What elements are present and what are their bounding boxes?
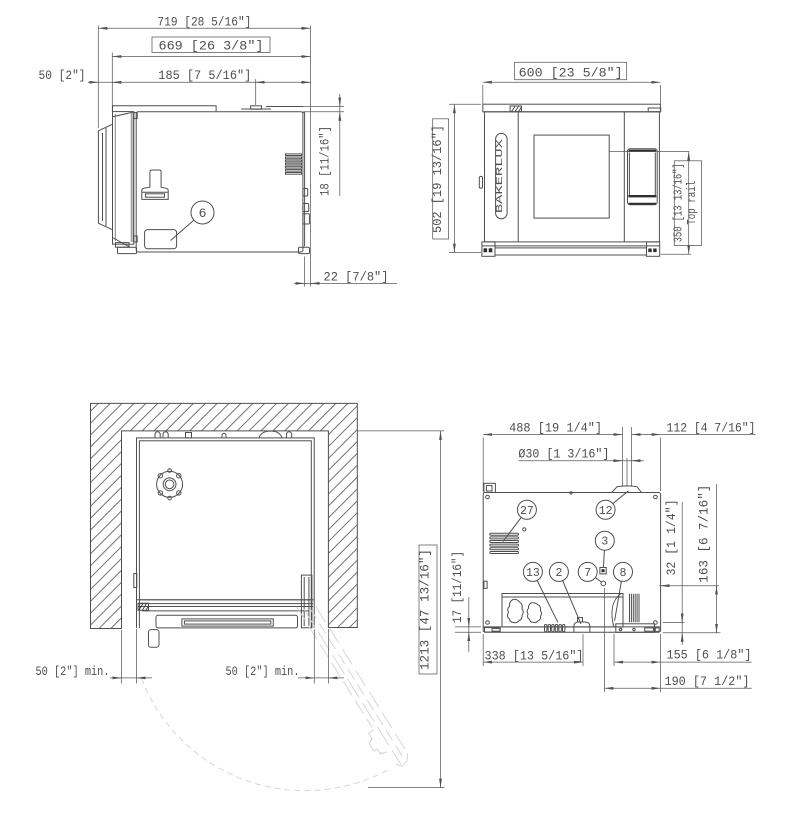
svg-text:2: 2 [555, 567, 562, 580]
svg-text:190 [7 1/2"]: 190 [7 1/2"] [665, 675, 750, 689]
svg-text:7: 7 [584, 567, 591, 580]
svg-text:6: 6 [199, 206, 207, 221]
svg-text:BAKERLUX: BAKERLUX [495, 138, 505, 213]
svg-text:112 [4 7/16"]: 112 [4 7/16"] [667, 422, 756, 436]
svg-text:163 [6 7/16"]: 163 [6 7/16"] [697, 485, 711, 583]
svg-text:17 [11/16"]: 17 [11/16"] [451, 551, 465, 623]
svg-text:22 [7/8"]: 22 [7/8"] [324, 270, 389, 284]
svg-text:338 [13 5/16"]: 338 [13 5/16"] [485, 650, 584, 664]
svg-text:155 [6 1/8"]: 155 [6 1/8"] [667, 649, 752, 663]
svg-text:18 [11/16"]: 18 [11/16"] [319, 126, 333, 196]
svg-text:488 [19 1/4"]: 488 [19 1/4"] [509, 422, 602, 436]
svg-text:27: 27 [520, 505, 534, 518]
svg-text:50 [2"] min.: 50 [2"] min. [226, 665, 300, 679]
svg-text:669 [26 3/8"]: 669 [26 3/8"] [159, 39, 264, 53]
svg-text:12: 12 [599, 505, 613, 518]
svg-text:350 [13 13/16"]: 350 [13 13/16"] [672, 163, 685, 242]
svg-text:Ø30 [1 3/16"]: Ø30 [1 3/16"] [518, 448, 609, 462]
svg-text:600 [23 5/8"]: 600 [23 5/8"] [519, 66, 623, 80]
svg-text:719 [28 5/16"]: 719 [28 5/16"] [157, 15, 251, 29]
svg-text:3: 3 [601, 536, 608, 549]
svg-text:32 [1 1/4"]: 32 [1 1/4"] [665, 500, 679, 576]
svg-text:50 [2"]: 50 [2"] [39, 69, 86, 83]
svg-text:1213 [47 13/16"]: 1213 [47 13/16"] [418, 549, 432, 670]
svg-text:185 [7 5/16"]: 185 [7 5/16"] [158, 69, 251, 83]
svg-text:502 [19 13/16"]: 502 [19 13/16"] [431, 125, 445, 233]
svg-text:Top rail: Top rail [686, 181, 699, 225]
svg-text:50 [2"] min.: 50 [2"] min. [36, 665, 110, 679]
svg-text:8: 8 [620, 567, 627, 580]
svg-text:13: 13 [526, 567, 540, 580]
